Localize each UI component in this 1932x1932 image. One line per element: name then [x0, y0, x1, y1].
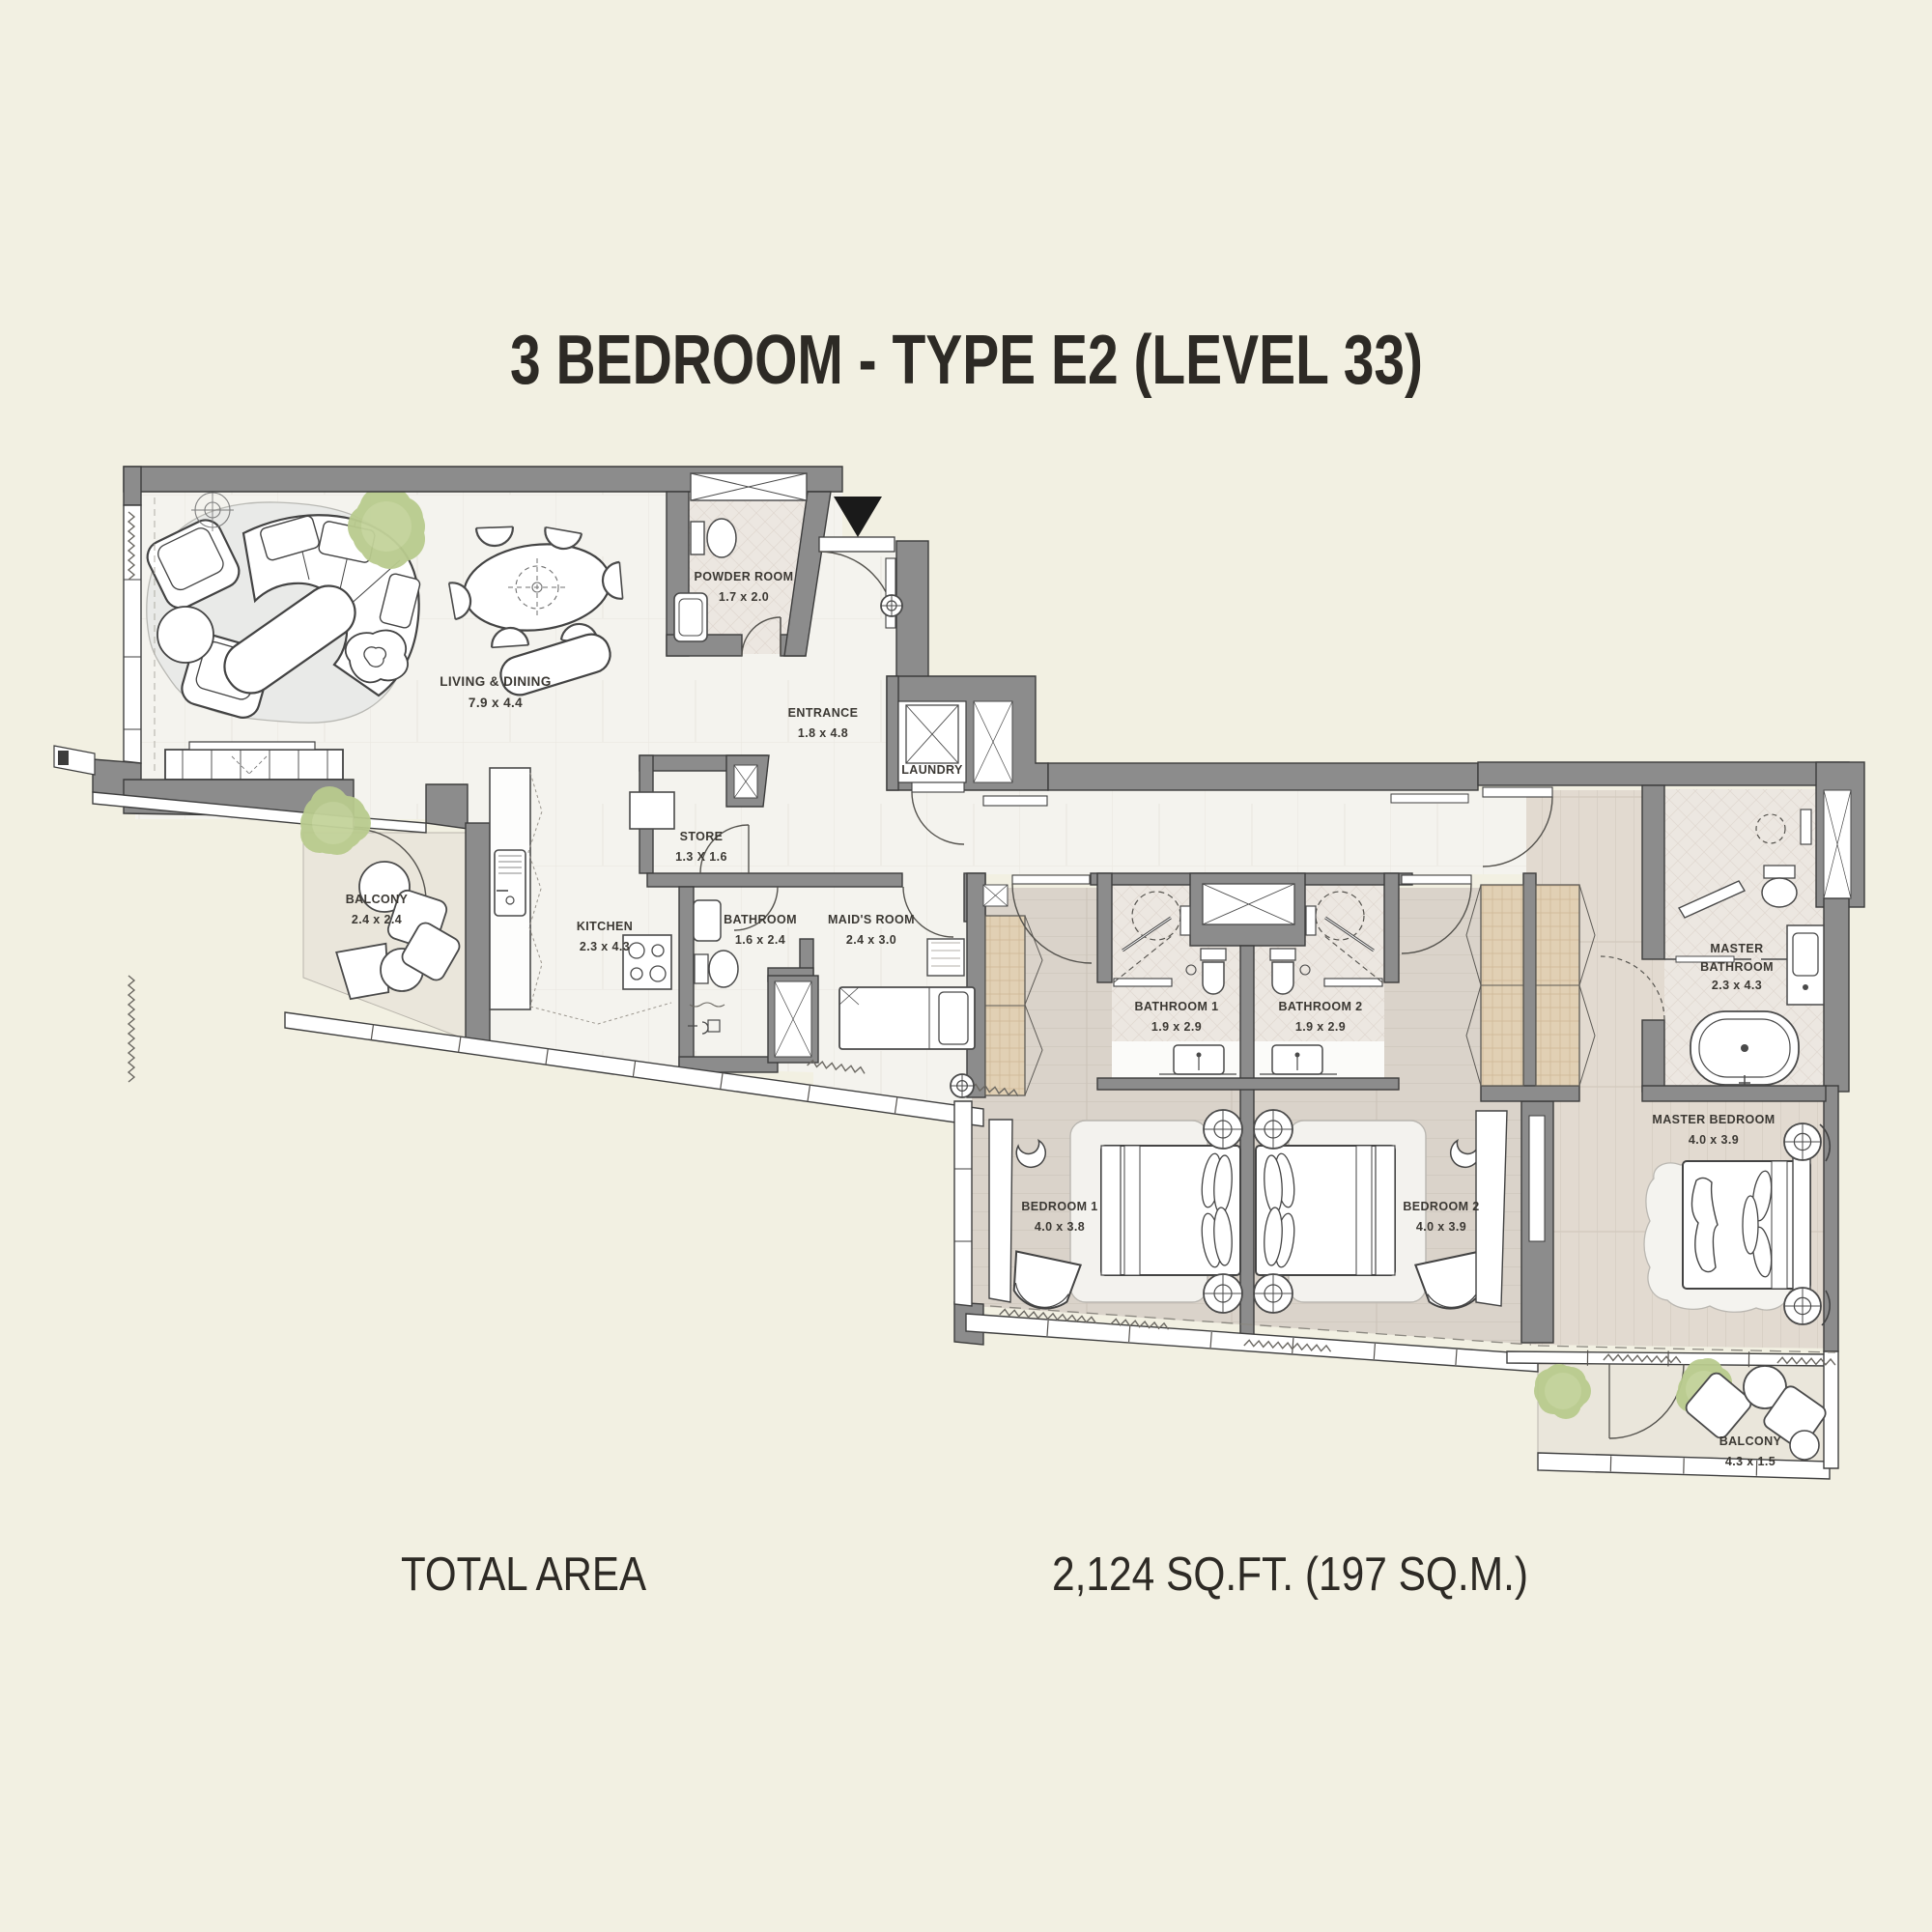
svg-text:BEDROOM 1: BEDROOM 1	[1021, 1200, 1097, 1213]
svg-text:2.3 x 4.3: 2.3 x 4.3	[580, 940, 630, 953]
svg-text:1.9 x 2.9: 1.9 x 2.9	[1151, 1020, 1202, 1034]
svg-text:3 BEDROOM - TYPE E2 (LEVEL 33): 3 BEDROOM - TYPE E2 (LEVEL 33)	[510, 322, 1423, 399]
svg-text:2.3 x 4.3: 2.3 x 4.3	[1712, 979, 1762, 992]
svg-text:MAID'S ROOM: MAID'S ROOM	[828, 913, 915, 926]
svg-text:BATHROOM: BATHROOM	[724, 913, 797, 926]
svg-text:BALCONY: BALCONY	[1719, 1435, 1782, 1448]
svg-text:2,124 SQ.FT. (197 SQ.M.): 2,124 SQ.FT. (197 SQ.M.)	[1052, 1548, 1528, 1601]
svg-text:4.0 x 3.9: 4.0 x 3.9	[1416, 1220, 1466, 1234]
svg-text:MASTER BEDROOM: MASTER BEDROOM	[1652, 1113, 1775, 1126]
svg-text:2.4 x 3.0: 2.4 x 3.0	[846, 933, 896, 947]
svg-text:1.8 x 4.8: 1.8 x 4.8	[798, 726, 848, 740]
svg-text:BATHROOM 1: BATHROOM 1	[1134, 1000, 1218, 1013]
svg-text:4.3 x 1.5: 4.3 x 1.5	[1725, 1455, 1776, 1468]
svg-text:BATHROOM: BATHROOM	[1700, 960, 1774, 974]
svg-text:BATHROOM 2: BATHROOM 2	[1278, 1000, 1362, 1013]
svg-text:LIVING & DINING: LIVING & DINING	[440, 674, 552, 689]
svg-text:MASTER: MASTER	[1710, 942, 1763, 955]
svg-text:KITCHEN: KITCHEN	[577, 920, 633, 933]
svg-text:1.9 x 2.9: 1.9 x 2.9	[1295, 1020, 1346, 1034]
svg-text:ENTRANCE: ENTRANCE	[788, 706, 859, 720]
svg-text:1.7 x 2.0: 1.7 x 2.0	[719, 590, 769, 604]
svg-text:BALCONY: BALCONY	[346, 893, 409, 906]
svg-text:1.6 x 2.4: 1.6 x 2.4	[735, 933, 785, 947]
svg-text:4.0 x 3.9: 4.0 x 3.9	[1689, 1133, 1739, 1147]
svg-text:LAUNDRY: LAUNDRY	[901, 763, 963, 777]
svg-text:1.3 X 1.6: 1.3 X 1.6	[675, 850, 727, 864]
svg-text:POWDER ROOM: POWDER ROOM	[694, 570, 793, 583]
svg-text:2.4 x 2.4: 2.4 x 2.4	[352, 913, 402, 926]
svg-text:7.9 x 4.4: 7.9 x 4.4	[469, 696, 523, 710]
svg-text:STORE: STORE	[680, 830, 724, 843]
svg-text:4.0 x 3.8: 4.0 x 3.8	[1035, 1220, 1085, 1234]
svg-text:BEDROOM 2: BEDROOM 2	[1403, 1200, 1479, 1213]
svg-text:TOTAL AREA: TOTAL AREA	[401, 1548, 646, 1601]
